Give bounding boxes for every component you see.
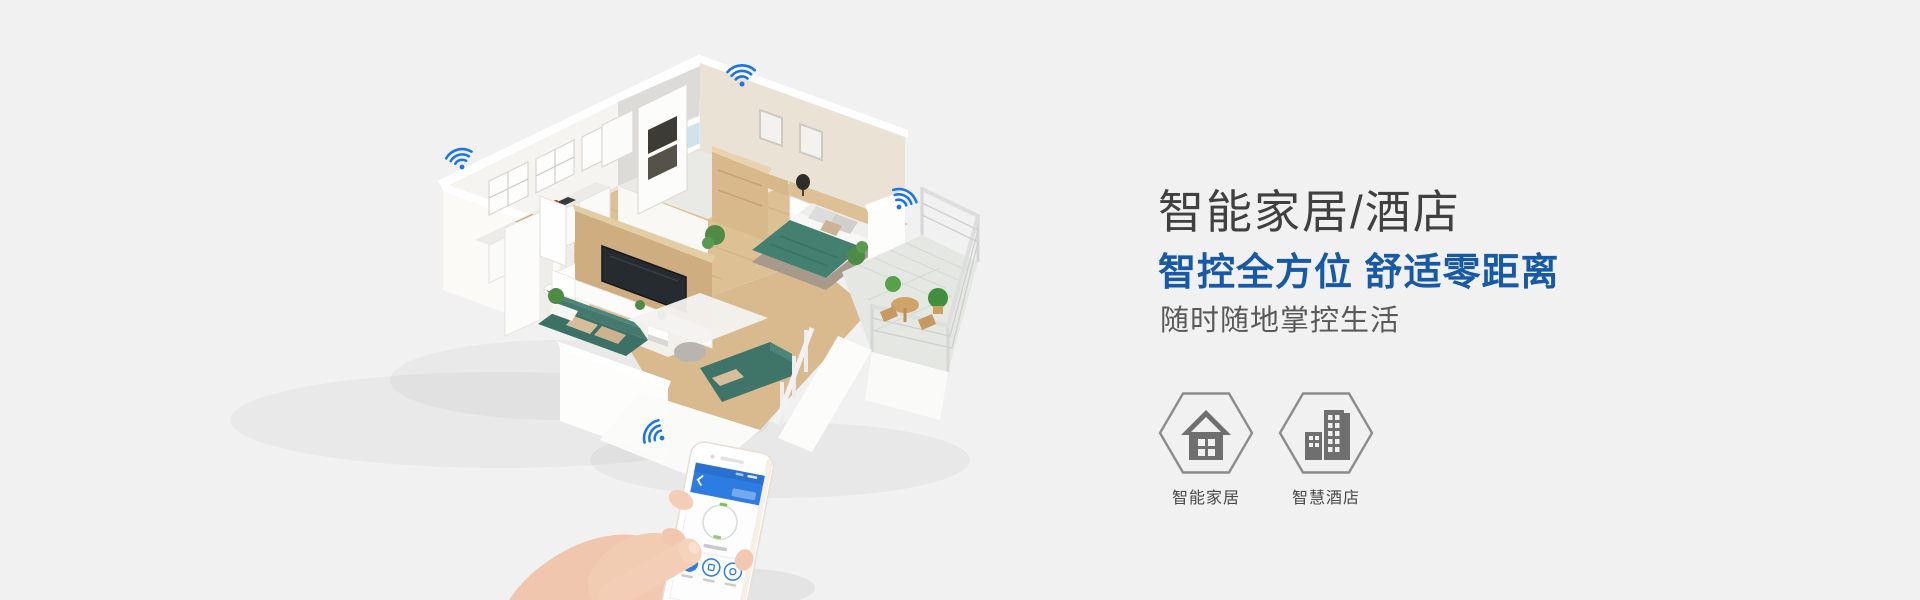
feature-label: 智能家居 (1172, 484, 1240, 508)
home-icon (1158, 390, 1254, 476)
lamp (796, 174, 810, 190)
door (540, 196, 566, 266)
fridge (505, 212, 540, 336)
feature-label: 智慧酒店 (1292, 484, 1360, 508)
hero-tagline: 随时随地掌控生活 (1160, 297, 1400, 339)
plant (885, 276, 901, 292)
pouf (674, 342, 706, 362)
feature-list: 智能家居 (1158, 390, 1374, 508)
plant (928, 288, 948, 308)
feature-smart-home[interactable]: 智能家居 (1158, 390, 1254, 508)
page-title: 智能家居/酒店 (1158, 176, 1461, 242)
feature-smart-hotel[interactable]: 智慧酒店 (1278, 390, 1374, 508)
hero-banner: 智能家居/酒店 智控全方位 舒适零距离 随时随地掌控生活 智能家居 (0, 0, 1920, 600)
hero-subtitle: 智控全方位 舒适零距离 (1158, 241, 1560, 296)
smart-home-illustration (0, 0, 1920, 600)
building-icon (1278, 390, 1374, 476)
